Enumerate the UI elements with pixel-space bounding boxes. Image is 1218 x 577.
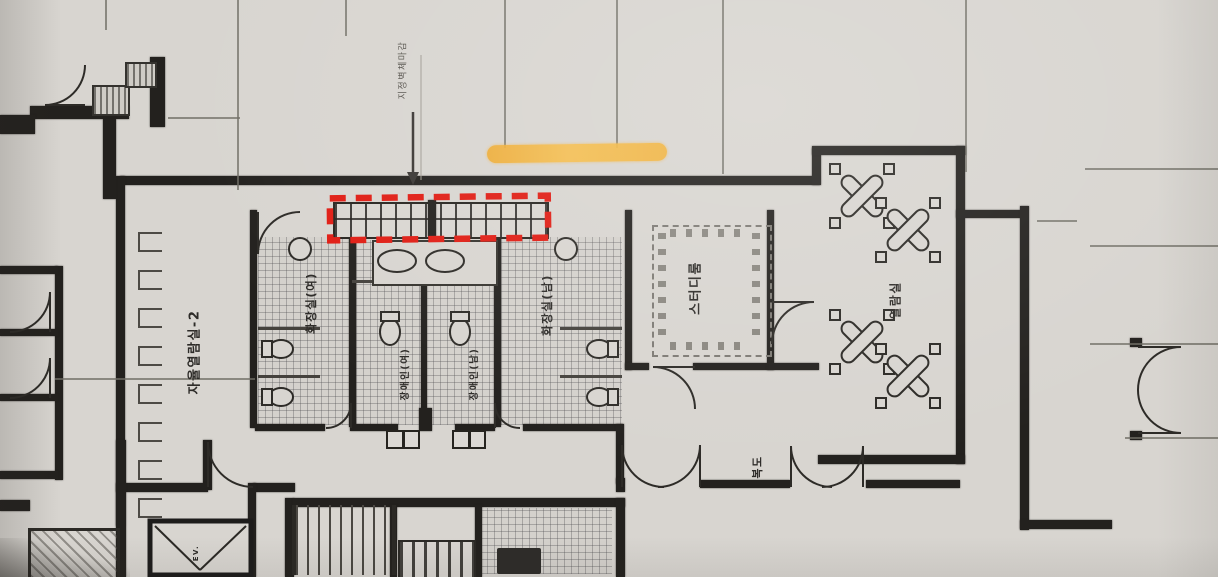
annotation-layer <box>0 0 1218 577</box>
red-dashed-marker-box <box>330 196 548 241</box>
floorplan-photo: 자율열람실-2 화장실(여) 화장실(남) 장애인(여) 장애인(남) 스터디룸… <box>0 0 1218 577</box>
leader-arrowhead-icon <box>407 172 419 185</box>
